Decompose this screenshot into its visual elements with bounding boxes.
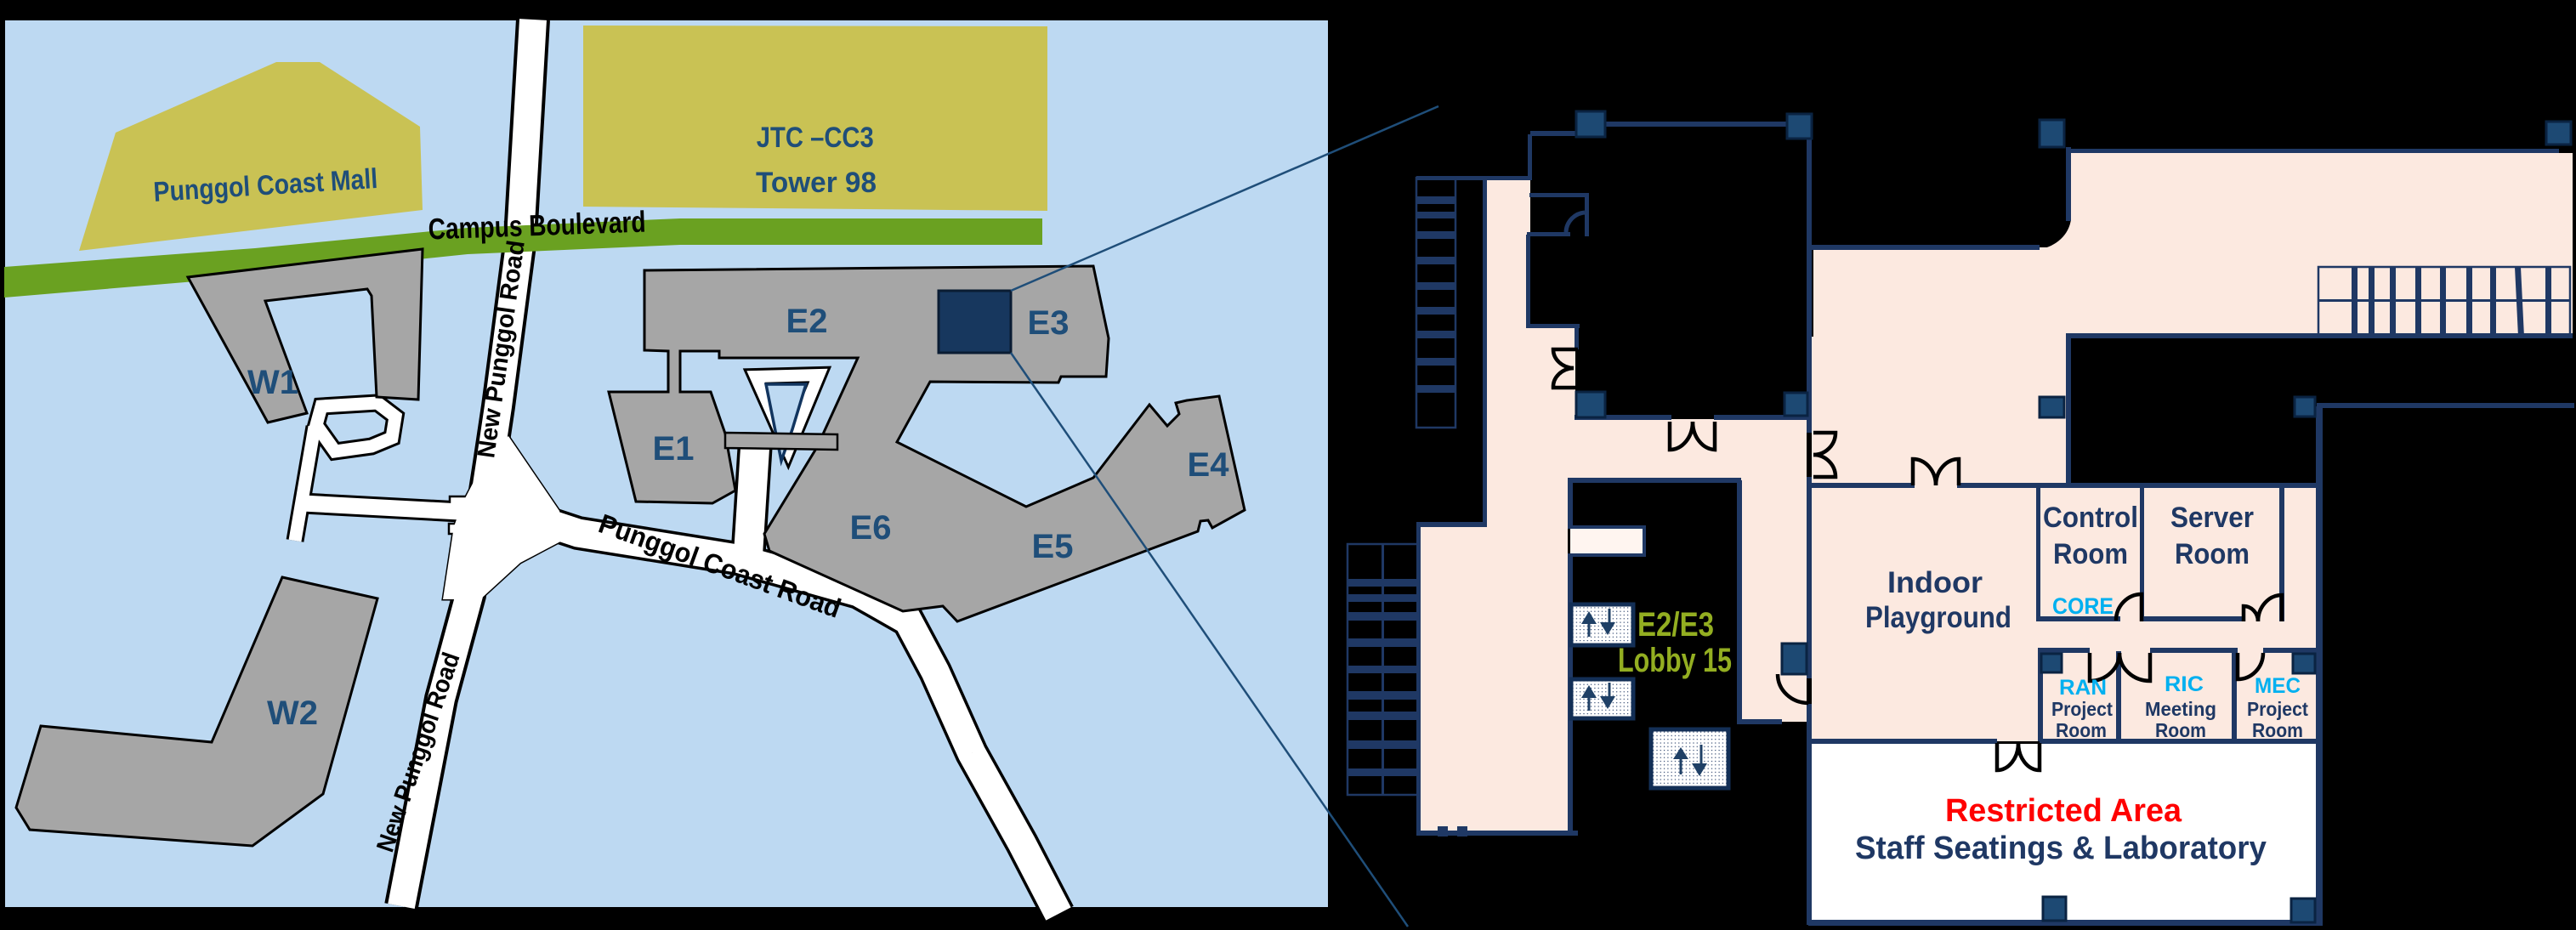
svg-text:CORE: CORE bbox=[2052, 593, 2114, 619]
svg-text:E1: E1 bbox=[653, 430, 695, 468]
svg-text:Project: Project bbox=[2051, 698, 2113, 720]
svg-text:E4: E4 bbox=[1188, 446, 1230, 484]
svg-text:Room: Room bbox=[2056, 719, 2107, 741]
svg-text:W1: W1 bbox=[247, 364, 298, 401]
svg-text:Lobby 15: Lobby 15 bbox=[1618, 642, 1732, 679]
svg-text:E2: E2 bbox=[786, 303, 828, 340]
svg-text:E2/E3: E2/E3 bbox=[1637, 606, 1714, 644]
svg-text:E3: E3 bbox=[1028, 304, 1070, 342]
svg-text:Server: Server bbox=[2170, 502, 2254, 534]
svg-text:Control: Control bbox=[2043, 502, 2138, 534]
svg-text:MEC: MEC bbox=[2255, 674, 2301, 698]
svg-text:RIC: RIC bbox=[2165, 672, 2204, 696]
svg-text:Playground: Playground bbox=[1865, 601, 2011, 634]
svg-text:Room: Room bbox=[2053, 538, 2128, 570]
svg-text:Meeting: Meeting bbox=[2145, 698, 2216, 720]
svg-text:E5: E5 bbox=[1032, 528, 1074, 565]
svg-text:Room: Room bbox=[2252, 719, 2303, 741]
svg-text:Room: Room bbox=[2175, 538, 2250, 570]
svg-text:Restricted Area: Restricted Area bbox=[1945, 793, 2182, 829]
svg-text:W2: W2 bbox=[267, 695, 318, 732]
svg-text:Staff Seatings & Laboratory: Staff Seatings & Laboratory bbox=[1855, 831, 2267, 866]
svg-text:RAN: RAN bbox=[2059, 676, 2107, 700]
svg-text:Project: Project bbox=[2247, 698, 2308, 720]
svg-text:E6: E6 bbox=[850, 509, 892, 547]
svg-text:Indoor: Indoor bbox=[1887, 566, 1983, 599]
svg-text:Room: Room bbox=[2155, 719, 2206, 741]
